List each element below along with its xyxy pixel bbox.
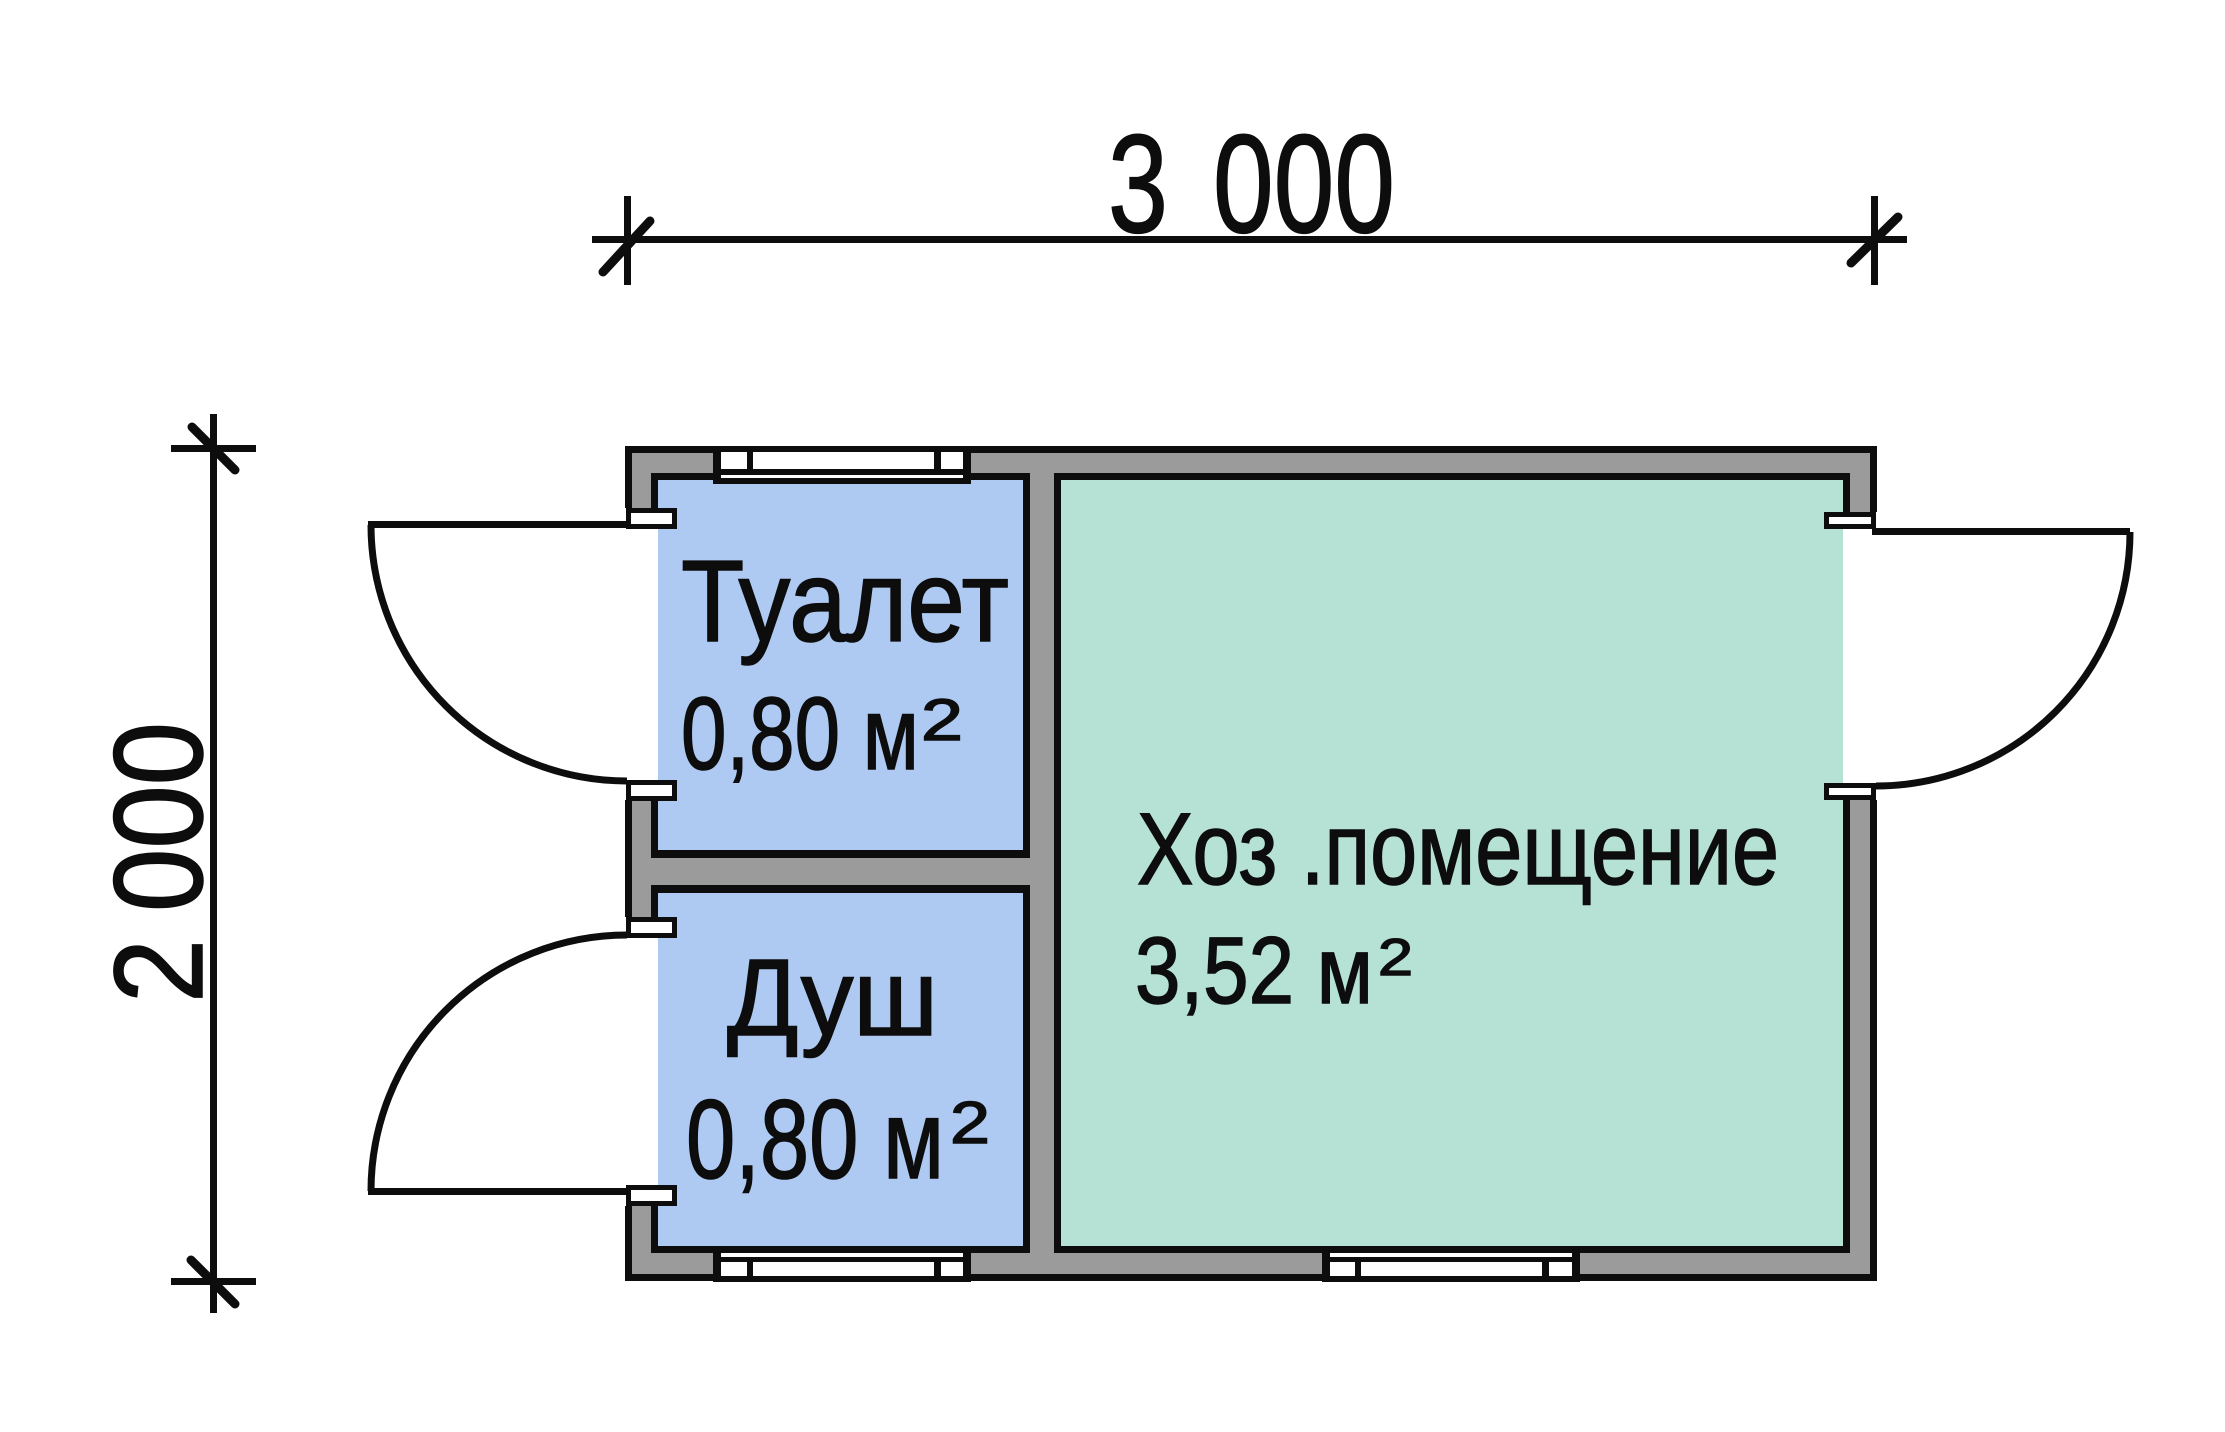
svg-text:3: 3 bbox=[1108, 105, 1168, 262]
svg-text:2: 2 bbox=[921, 688, 963, 753]
svg-text:0,80 м: 0,80 м bbox=[681, 676, 919, 791]
svg-text:Душ: Душ bbox=[727, 937, 938, 1059]
svg-text:Хоз .помещение: Хоз .помещение bbox=[1137, 792, 1779, 906]
svg-text:Туалет: Туалет bbox=[681, 536, 1009, 666]
svg-text:3,52 м: 3,52 м bbox=[1135, 918, 1373, 1024]
svg-text:000: 000 bbox=[88, 722, 229, 912]
svg-text:2: 2 bbox=[1378, 929, 1413, 987]
svg-text:2: 2 bbox=[88, 939, 229, 1003]
svg-text:0,80 м: 0,80 м bbox=[686, 1077, 944, 1202]
svg-text:2: 2 bbox=[950, 1090, 990, 1156]
svg-text:000: 000 bbox=[1213, 105, 1395, 262]
